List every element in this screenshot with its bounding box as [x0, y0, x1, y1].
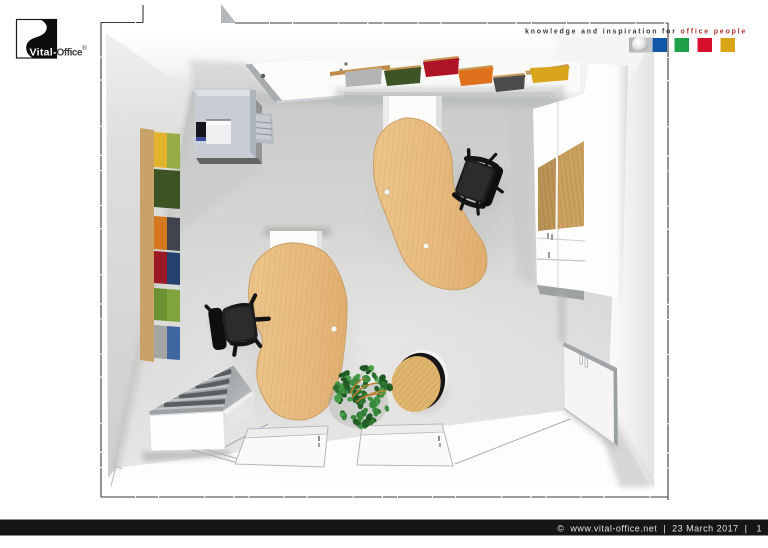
svg-text:© www.vital-office.net | 23: © www.vital-office.net | 23 March 2017 |… [557, 524, 762, 534]
svg-text:Vital-: Vital- [30, 47, 57, 59]
svg-text:knowledge and inspiration for: knowledge and inspiration for office peo… [525, 29, 747, 36]
svg-text:Office: Office [57, 48, 84, 59]
svg-text:®: ® [82, 44, 87, 52]
